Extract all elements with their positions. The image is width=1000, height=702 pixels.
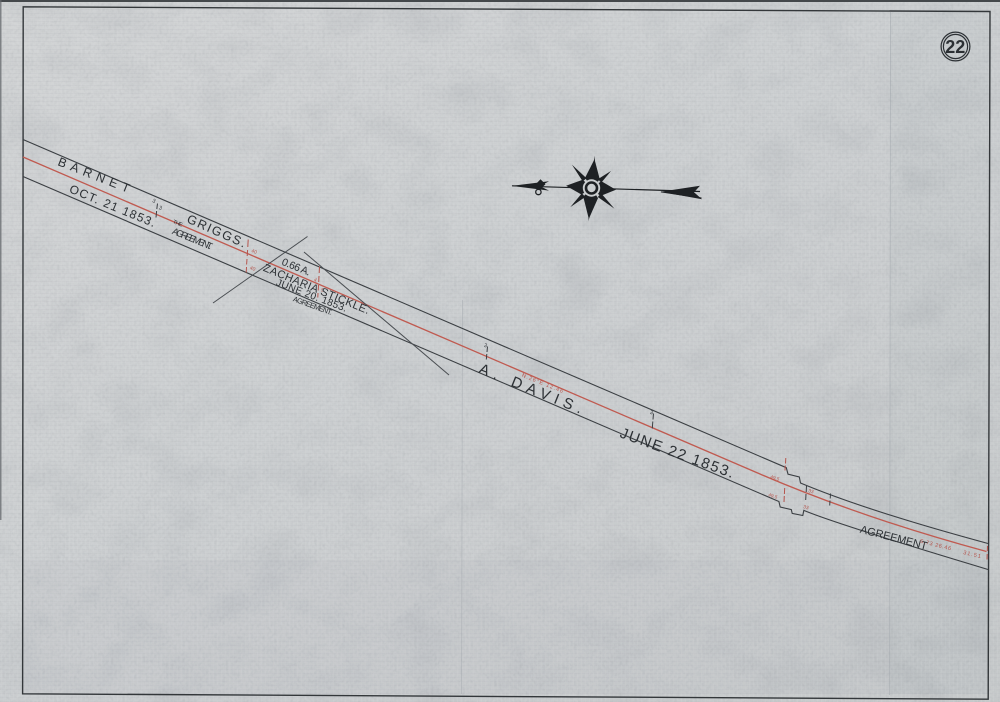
svg-text:22: 22 <box>945 37 965 57</box>
